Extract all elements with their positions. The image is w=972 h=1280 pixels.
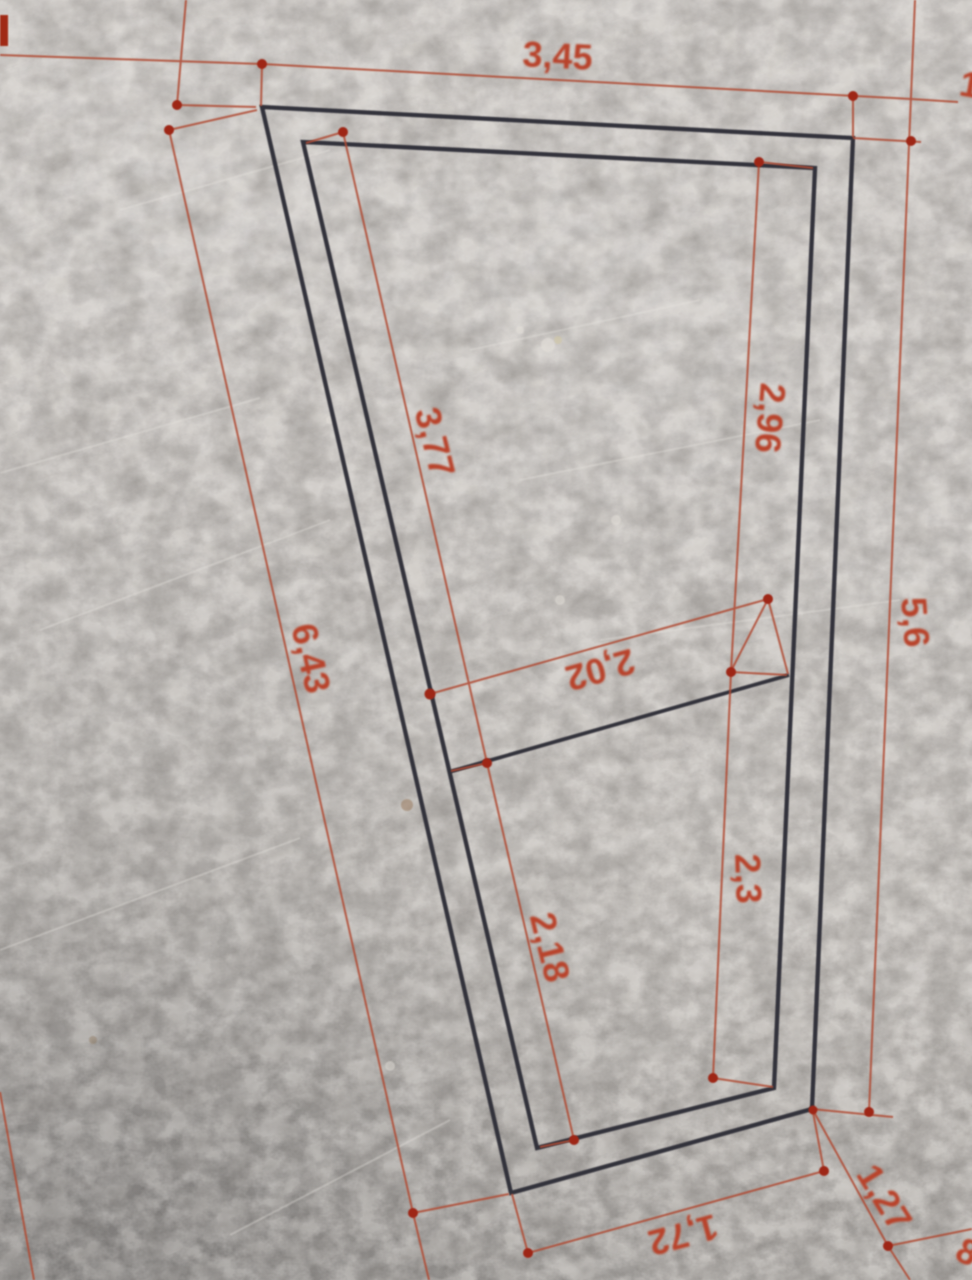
svg-text:2,96: 2,96 [747,381,794,454]
svg-text:3,45: 3,45 [522,33,594,78]
svg-text:2,3: 2,3 [727,853,770,904]
svg-text:5,6: 5,6 [893,596,937,649]
